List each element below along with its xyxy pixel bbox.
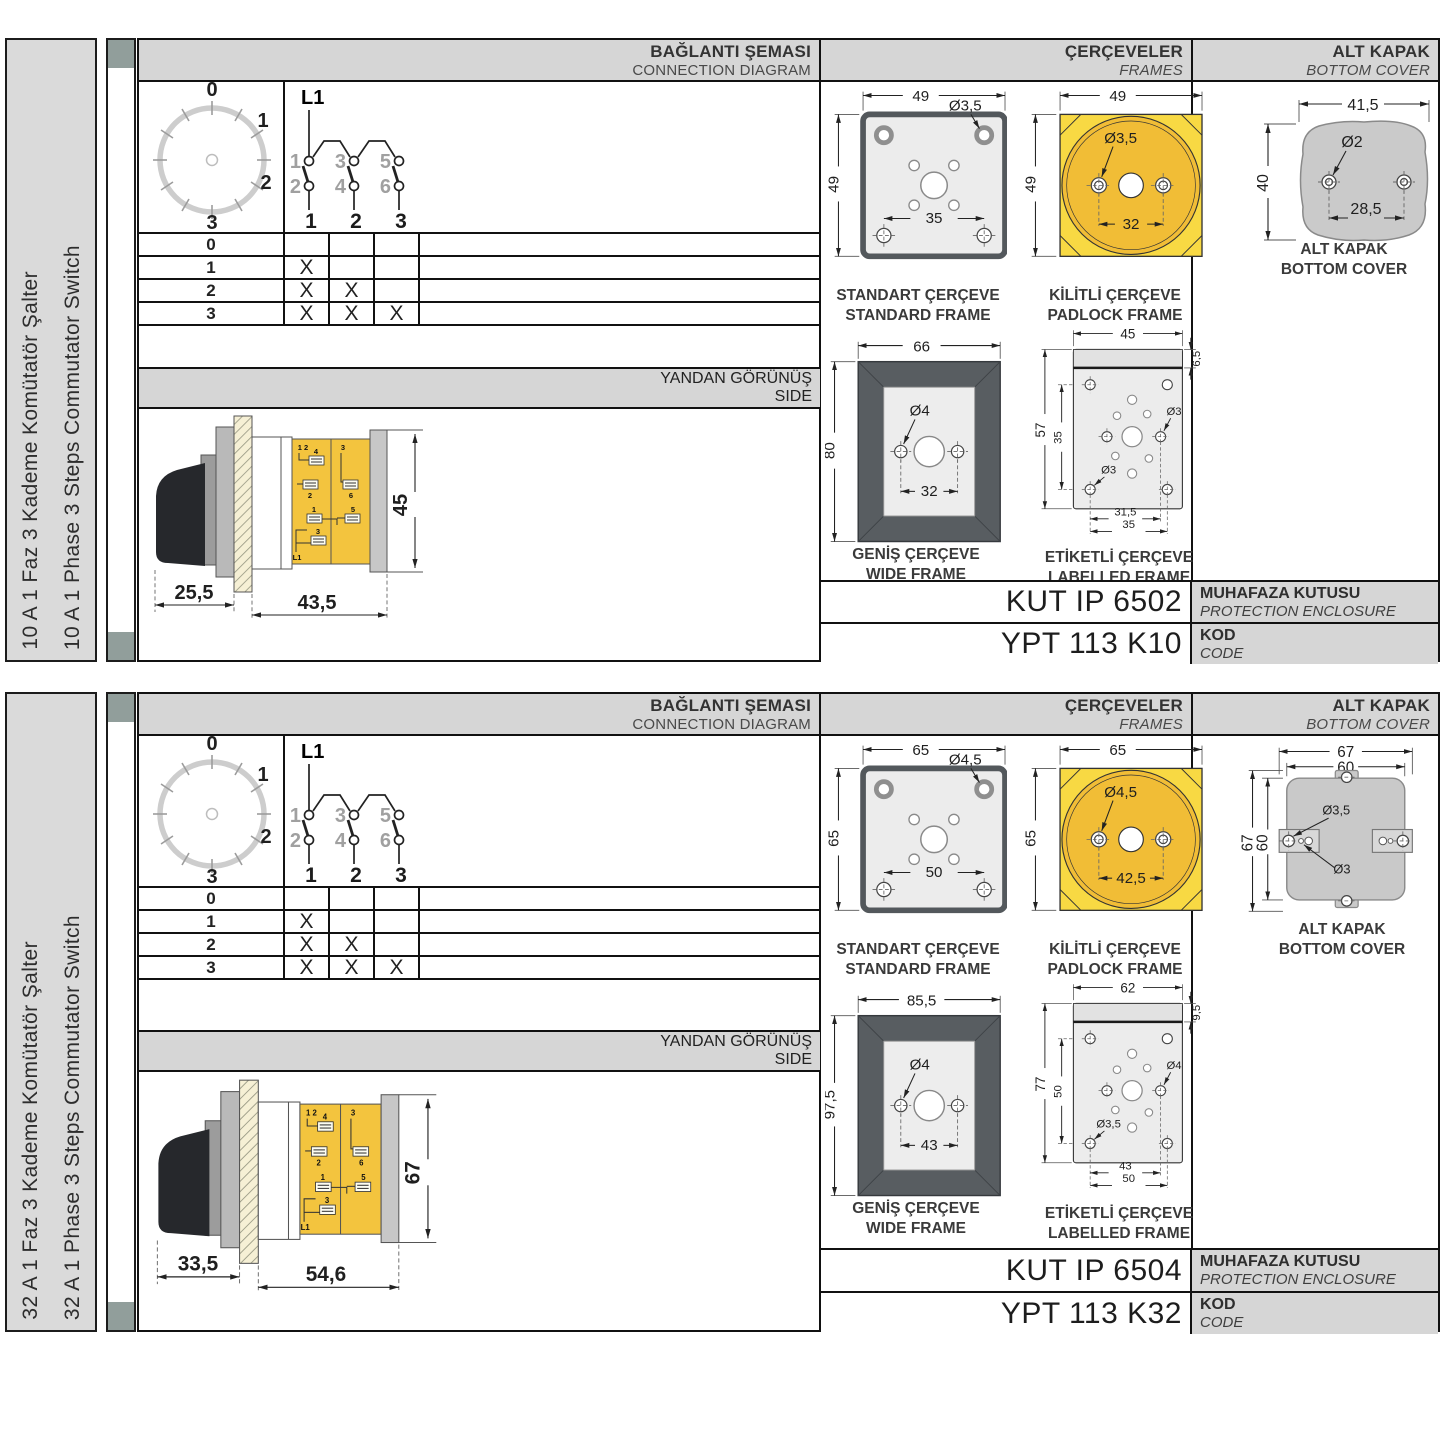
pole-3: 3 [395, 210, 407, 232]
mark-cell: X [330, 957, 375, 978]
row-label: 0 [139, 888, 285, 909]
side-label-english: 32 A 1 Phase 3 Steps Commutator Switch [61, 915, 85, 1320]
mark-cell: X [285, 957, 330, 978]
dial-pos-1: 1 [257, 764, 268, 786]
mark-cell [330, 234, 375, 255]
term-label-1: 1 [321, 1173, 326, 1182]
header-side-en: SIDE [775, 388, 812, 406]
wide-dim-span: 43 [921, 1137, 938, 1154]
padlock-frame-caption: KİLİTLİ ÇERÇEVE PADLOCK FRAME [1020, 940, 1210, 980]
enclosure-label-tr: MUHAFAZA KUTUSU [1200, 585, 1438, 603]
table-row: 3 X X X [139, 303, 820, 326]
enclosure-value: KUT IP 6504 [821, 1250, 1190, 1291]
code-value: YPT 113 K32 [821, 1293, 1190, 1334]
header-frames: ÇERÇEVELER FRAMES [821, 40, 1191, 82]
header-side-view: YANDAN GÖRÜNÜŞ SIDE [139, 1030, 820, 1072]
dial-pos-3: 3 [206, 212, 217, 230]
caption-en: PADLOCK FRAME [1020, 960, 1210, 980]
table-row: 0 [139, 234, 820, 257]
mark-cell [375, 257, 420, 278]
mark-cell [330, 257, 375, 278]
row-label: 2 [139, 280, 285, 301]
code-row: YPT 113 K10 KOD CODE [821, 622, 1438, 664]
lab-dim-width: 45 [1120, 327, 1135, 342]
header-cover: ALT KAPAK BOTTOM COVER [1193, 694, 1438, 736]
lab-dim-span1: 43 [1119, 1160, 1132, 1172]
filler-cell [420, 957, 820, 978]
wide-dim-hole: Ø4 [910, 1057, 930, 1074]
header-frames-tr: ÇERÇEVELER [1065, 42, 1183, 62]
term-label-12: 1 2 [306, 1109, 318, 1118]
term-label-2: 2 [317, 1159, 322, 1168]
header-cover-tr: ALT KAPAK [1333, 42, 1431, 62]
wide-dim-span: 32 [921, 483, 938, 500]
wide-dim-width: 85,5 [907, 992, 936, 1009]
table-row: 2 X X [139, 280, 820, 303]
product-panel-32a: 32 A 1 Faz 3 Kademe Komütatör Şalter 32 … [0, 692, 1445, 1332]
pad-dim-span: 32 [1123, 216, 1140, 233]
dial-cell: 0 1 2 3 [139, 82, 285, 232]
side-label-turkish: 10 A 1 Faz 3 Kademe Komütatör Şalter [19, 271, 43, 650]
dim-body: 54,6 [306, 1263, 346, 1286]
contact-2: 2 [290, 176, 301, 198]
term-label-3b: 3 [325, 1196, 330, 1205]
cov-dim-span: 28,5 [1350, 201, 1381, 218]
term-label-1: 1 [312, 505, 316, 514]
cov-dim-hole: Ø2 [1341, 134, 1362, 151]
wide-dim-height: 97,5 [825, 1090, 839, 1119]
code-label-en: CODE [1200, 1314, 1438, 1331]
caption-en: STANDARD FRAME [823, 960, 1013, 980]
caption-tr: GENİŞ ÇERÇEVE [821, 545, 1011, 565]
datasheet-panel: BAĞLANTI ŞEMASI CONNECTION DIAGRAM ÇERÇE… [137, 38, 1440, 662]
term-label-6: 6 [349, 491, 353, 500]
connection-circuit-diagram: L1 1 3 5 2 4 6 1 2 3 [285, 82, 819, 232]
dim-front: 33,5 [178, 1253, 218, 1276]
lab-dim-height: 57 [1033, 423, 1048, 438]
header-connection-en: CONNECTION DIAGRAM [632, 716, 811, 733]
lab-dim-span2: 35 [1122, 519, 1135, 531]
dim-front: 25,5 [175, 582, 214, 604]
code-row: YPT 113 K32 KOD CODE [821, 1291, 1438, 1334]
mark-cell: X [285, 280, 330, 301]
side-view-drawing: 1 2 4 2 1 3 L1 3 6 5 45 25,5 43,5 [147, 412, 587, 657]
std-dim-span: 50 [926, 864, 943, 881]
circuit-phase-label: L1 [301, 87, 324, 109]
mark-cell: X [285, 303, 330, 324]
mark-cell: X [330, 303, 375, 324]
header-cover-tr: ALT KAPAK [1333, 696, 1431, 716]
row-label: 0 [139, 234, 285, 255]
standard-frame-caption: STANDART ÇERÇEVE STANDARD FRAME [823, 286, 1013, 326]
pole-3: 3 [395, 864, 407, 886]
table-row: 0 [139, 888, 820, 911]
contact-5: 5 [380, 151, 391, 173]
mark-cell: X [330, 934, 375, 955]
rotary-dial-diagram: 0 1 2 3 [139, 82, 283, 230]
lab-dim-hole-corner: Ø3,5 [1096, 1119, 1121, 1131]
caption-en: LABELLED FRAME [1029, 1224, 1209, 1244]
caption-en: BOTTOM COVER [1247, 940, 1437, 960]
table-row: 3 X X X [139, 957, 820, 980]
header-connection: BAĞLANTI ŞEMASI CONNECTION DIAGRAM [139, 40, 819, 82]
covb-dim-h2: 60 [1255, 834, 1272, 851]
filler-cell [420, 911, 820, 932]
term-label-l1: L1 [293, 553, 302, 562]
mark-cell: X [330, 280, 375, 301]
enclosure-label: MUHAFAZA KUTUSU PROTECTION ENCLOSURE [1190, 1250, 1438, 1291]
filler-cell [420, 934, 820, 955]
contact-4: 4 [335, 830, 347, 852]
labelled-frame-drawing: 62 9,5 77 50 Ø4 [1033, 980, 1201, 1198]
mark-cell [285, 888, 330, 909]
mounting-panel-hatch [234, 416, 252, 592]
dial-pos-3: 3 [206, 866, 217, 884]
dial-pos-2: 2 [260, 172, 271, 194]
caption-tr: GENİŞ ÇERÇEVE [821, 1199, 1011, 1219]
bottom-cover-drawing: 67 60 67 60 Ø3,5 Ø3 [1241, 742, 1441, 918]
contact-1: 1 [290, 805, 301, 827]
contact-6: 6 [380, 176, 391, 198]
pole-2: 2 [350, 864, 362, 886]
header-connection-tr: BAĞLANTI ŞEMASI [650, 42, 811, 62]
bottom-cover-drawing: 41,5 40 Ø2 28,5 [1244, 92, 1444, 257]
contact-3: 3 [335, 805, 346, 827]
mark-cell: X [285, 934, 330, 955]
lab-dim-inner: 50 [1053, 1085, 1065, 1098]
binder-strip [106, 38, 136, 662]
filler-cell [420, 257, 820, 278]
labelled-frame-drawing: 45 6,5 57 35 Ø3 [1033, 326, 1201, 544]
pad-dim-hole: Ø4,5 [1104, 784, 1137, 801]
caption-en: BOTTOM COVER [1249, 260, 1439, 280]
row-label: 1 [139, 257, 285, 278]
lab-dim-hole-corner: Ø3 [1101, 465, 1116, 477]
row-label: 3 [139, 303, 285, 324]
term-label-3: 3 [341, 443, 345, 452]
padlock-frame-caption: KİLİTLİ ÇERÇEVE PADLOCK FRAME [1020, 286, 1210, 326]
connection-circuit-diagram: L1 1 3 5 2 4 6 1 2 3 [285, 736, 819, 886]
standard-frame-caption: STANDART ÇERÇEVE STANDARD FRAME [823, 940, 1013, 980]
term-label-6: 6 [359, 1159, 364, 1168]
header-cover: ALT KAPAK BOTTOM COVER [1193, 40, 1438, 82]
pole-1: 1 [305, 864, 317, 886]
contact-1: 1 [290, 151, 301, 173]
lab-dim-width: 62 [1120, 981, 1135, 996]
caption-tr: ALT KAPAK [1247, 920, 1437, 940]
header-side-tr: YANDAN GÖRÜNÜŞ [660, 1033, 812, 1051]
header-side-en: SIDE [775, 1051, 812, 1069]
switching-table: 0 1 X 2 X X 3 X [139, 232, 820, 326]
header-connection-en: CONNECTION DIAGRAM [632, 62, 811, 79]
row-label: 3 [139, 957, 285, 978]
caption-en: STANDARD FRAME [823, 306, 1013, 326]
mark-cell: X [375, 957, 420, 978]
header-frames-tr: ÇERÇEVELER [1065, 696, 1183, 716]
lab-dim-height: 77 [1033, 1077, 1048, 1092]
mark-cell [375, 888, 420, 909]
bottom-cover-caption: ALT KAPAK BOTTOM COVER [1249, 240, 1439, 280]
strip-square-top [108, 40, 134, 68]
caption-en: PADLOCK FRAME [1020, 306, 1210, 326]
switching-table: 0 1 X 2 X X 3 X [139, 886, 820, 980]
caption-tr: STANDART ÇERÇEVE [823, 286, 1013, 306]
contact-2: 2 [290, 830, 301, 852]
enclosure-row: KUT IP 6504 MUHAFAZA KUTUSU PROTECTION E… [821, 1248, 1438, 1291]
table-row: 1 X [139, 911, 820, 934]
bottom-cover-caption: ALT KAPAK BOTTOM COVER [1247, 920, 1437, 960]
enclosure-label-en: PROTECTION ENCLOSURE [1200, 1271, 1438, 1288]
lab-dim-inner: 35 [1053, 431, 1065, 444]
side-label-bar: 32 A 1 Faz 3 Kademe Komütatör Şalter 32 … [5, 692, 97, 1332]
header-side-view: YANDAN GÖRÜNÜŞ SIDE [139, 367, 820, 409]
row-label: 1 [139, 911, 285, 932]
term-label-5: 5 [351, 505, 355, 514]
std-dim-height: 65 [827, 830, 842, 847]
header-frames-en: FRAMES [1119, 62, 1183, 79]
code-value: YPT 113 K10 [821, 624, 1190, 664]
code-label: KOD CODE [1190, 624, 1438, 664]
caption-tr: ETİKETLİ ÇERÇEVE [1029, 1204, 1209, 1224]
pole-2: 2 [350, 210, 362, 232]
enclosure-value: KUT IP 6502 [821, 582, 1190, 622]
covb-dim-hole1: Ø3,5 [1322, 802, 1350, 817]
lab-dim-hole-side: Ø3 [1166, 406, 1181, 418]
pad-dim-span: 42,5 [1116, 870, 1145, 887]
padlock-frame-drawing: 49 49 Ø3,5 32 [1024, 86, 1204, 280]
term-label-12: 1 2 [298, 443, 308, 452]
term-label-l1: L1 [301, 1223, 311, 1232]
padlock-frame-drawing: 65 65 Ø4,5 42,5 [1024, 740, 1204, 934]
header-cover-en: BOTTOM COVER [1306, 62, 1430, 79]
binder-strip [106, 692, 136, 1332]
dim-body: 43,5 [298, 592, 337, 614]
code-label-en: CODE [1200, 645, 1438, 662]
filler-cell [420, 888, 820, 909]
pad-dim-width: 49 [1109, 88, 1126, 105]
standard-frame-drawing: 65 65 Ø4,5 50 [827, 740, 1007, 934]
filler-cell [420, 303, 820, 324]
header-side-tr: YANDAN GÖRÜNÜŞ [660, 370, 812, 388]
caption-tr: ALT KAPAK [1249, 240, 1439, 260]
filler-cell [420, 280, 820, 301]
mounting-panel-hatch [240, 1080, 259, 1263]
cov-dim-width: 41,5 [1347, 97, 1378, 114]
std-dim-width: 65 [912, 742, 929, 759]
circuit-phase-label: L1 [301, 741, 324, 763]
mark-cell: X [375, 303, 420, 324]
datasheet-panel: BAĞLANTI ŞEMASI CONNECTION DIAGRAM ÇERÇE… [137, 692, 1440, 1332]
header-connection-tr: BAĞLANTI ŞEMASI [650, 696, 811, 716]
pad-dim-height: 65 [1024, 830, 1039, 847]
rotary-dial-diagram: 0 1 2 3 [139, 736, 283, 884]
filler-cell [420, 234, 820, 255]
contact-5: 5 [380, 805, 391, 827]
switch-handle [158, 1129, 209, 1236]
contact-6: 6 [380, 830, 391, 852]
dim-height: 45 [390, 494, 412, 516]
strip-square-bottom [108, 632, 134, 660]
standard-frame-drawing: 49 49 Ø3,5 35 [827, 86, 1007, 280]
enclosure-label: MUHAFAZA KUTUSU PROTECTION ENCLOSURE [1190, 582, 1438, 622]
std-dim-hole: Ø4,5 [949, 752, 982, 769]
lab-dim-span2: 50 [1122, 1173, 1135, 1185]
term-label-5: 5 [361, 1173, 366, 1182]
code-label: KOD CODE [1190, 1293, 1438, 1334]
contact-3: 3 [335, 151, 346, 173]
dial-cell: 0 1 2 3 [139, 736, 285, 886]
term-label-3: 3 [351, 1109, 356, 1118]
std-dim-span: 35 [926, 210, 943, 227]
mark-cell [375, 234, 420, 255]
mark-cell [285, 234, 330, 255]
mark-cell: X [285, 257, 330, 278]
mark-cell [330, 888, 375, 909]
product-panel-10a: 10 A 1 Faz 3 Kademe Komütatör Şalter 10 … [0, 38, 1445, 662]
std-dim-hole: Ø3,5 [949, 98, 982, 115]
dial-pos-0: 0 [206, 82, 217, 101]
caption-en: WIDE FRAME [821, 1219, 1011, 1239]
term-label-3b: 3 [316, 527, 320, 536]
mark-cell [375, 280, 420, 301]
covb-dim-hole2: Ø3 [1333, 861, 1350, 876]
mark-cell [375, 911, 420, 932]
row-label: 2 [139, 934, 285, 955]
caption-tr: STANDART ÇERÇEVE [823, 940, 1013, 960]
side-view-drawing: 1 2 4 2 1 3 L1 3 6 5 67 33,5 54,6 [147, 1076, 609, 1331]
std-dim-width: 49 [912, 88, 929, 105]
wide-dim-width: 66 [913, 338, 930, 355]
caption-tr: KİLİTLİ ÇERÇEVE [1020, 286, 1210, 306]
caption-tr: KİLİTLİ ÇERÇEVE [1020, 940, 1210, 960]
caption-tr: ETİKETLİ ÇERÇEVE [1029, 548, 1209, 568]
lab-dim-hole-side: Ø4 [1166, 1060, 1181, 1072]
lab-dim-strip: 9,5 [1191, 1005, 1201, 1021]
dial-pos-2: 2 [260, 826, 271, 848]
side-label-bar: 10 A 1 Faz 3 Kademe Komütatör Şalter 10 … [5, 38, 97, 662]
enclosure-row: KUT IP 6502 MUHAFAZA KUTUSU PROTECTION E… [821, 580, 1438, 622]
side-label-turkish: 32 A 1 Faz 3 Kademe Komütatör Şalter [19, 941, 43, 1320]
dial-pos-0: 0 [206, 736, 217, 755]
cov-dim-height: 40 [1255, 174, 1272, 192]
header-cover-en: BOTTOM COVER [1306, 716, 1430, 733]
strip-square-bottom [108, 1302, 134, 1330]
side-label-english: 10 A 1 Phase 3 Steps Commutator Switch [61, 245, 85, 650]
term-label-2: 2 [308, 491, 312, 500]
contact-4: 4 [335, 176, 347, 198]
mark-cell [330, 911, 375, 932]
wide-frame-drawing: 85,5 97,5 Ø4 43 [825, 992, 1005, 1205]
strip-square-top [108, 694, 134, 722]
switch-handle [156, 463, 205, 566]
wide-frame-caption: GENİŞ ÇERÇEVE WIDE FRAME [821, 1199, 1011, 1239]
dial-pos-1: 1 [257, 110, 268, 132]
wide-dim-hole: Ø4 [910, 403, 930, 420]
pad-dim-height: 49 [1024, 176, 1039, 193]
header-connection: BAĞLANTI ŞEMASI CONNECTION DIAGRAM [139, 694, 819, 736]
enclosure-label-en: PROTECTION ENCLOSURE [1200, 603, 1438, 620]
code-label-tr: KOD [1200, 1296, 1438, 1314]
labelled-frame-caption: ETİKETLİ ÇERÇEVE LABELLED FRAME [1029, 1204, 1209, 1244]
table-row: 1 X [139, 257, 820, 280]
wide-frame-drawing: 66 80 Ø4 32 [825, 338, 1005, 551]
table-row: 2 X X [139, 934, 820, 957]
enclosure-label-tr: MUHAFAZA KUTUSU [1200, 1253, 1438, 1271]
lab-dim-strip: 6,5 [1191, 351, 1201, 367]
mark-cell [375, 934, 420, 955]
lab-dim-span1: 31,5 [1114, 506, 1136, 518]
code-label-tr: KOD [1200, 627, 1438, 645]
header-frames-en: FRAMES [1119, 716, 1183, 733]
pole-1: 1 [305, 210, 317, 232]
mark-cell: X [285, 911, 330, 932]
wide-dim-height: 80 [825, 442, 839, 459]
pad-dim-width: 65 [1109, 742, 1126, 759]
pad-dim-hole: Ø3,5 [1104, 130, 1137, 147]
term-label-4: 4 [323, 1113, 328, 1122]
header-frames: ÇERÇEVELER FRAMES [821, 694, 1191, 736]
dim-height: 67 [402, 1161, 425, 1184]
std-dim-height: 49 [827, 176, 842, 193]
